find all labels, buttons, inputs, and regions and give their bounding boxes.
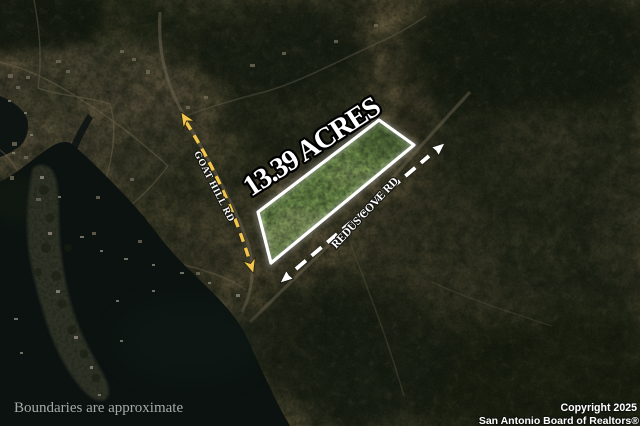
svg-text:San Antonio Board of Realtors®: San Antonio Board of Realtors® <box>479 415 639 426</box>
svg-text:Boundaries are approximate: Boundaries are approximate <box>14 400 183 416</box>
svg-text:Copyright 2025: Copyright 2025 <box>560 402 637 414</box>
